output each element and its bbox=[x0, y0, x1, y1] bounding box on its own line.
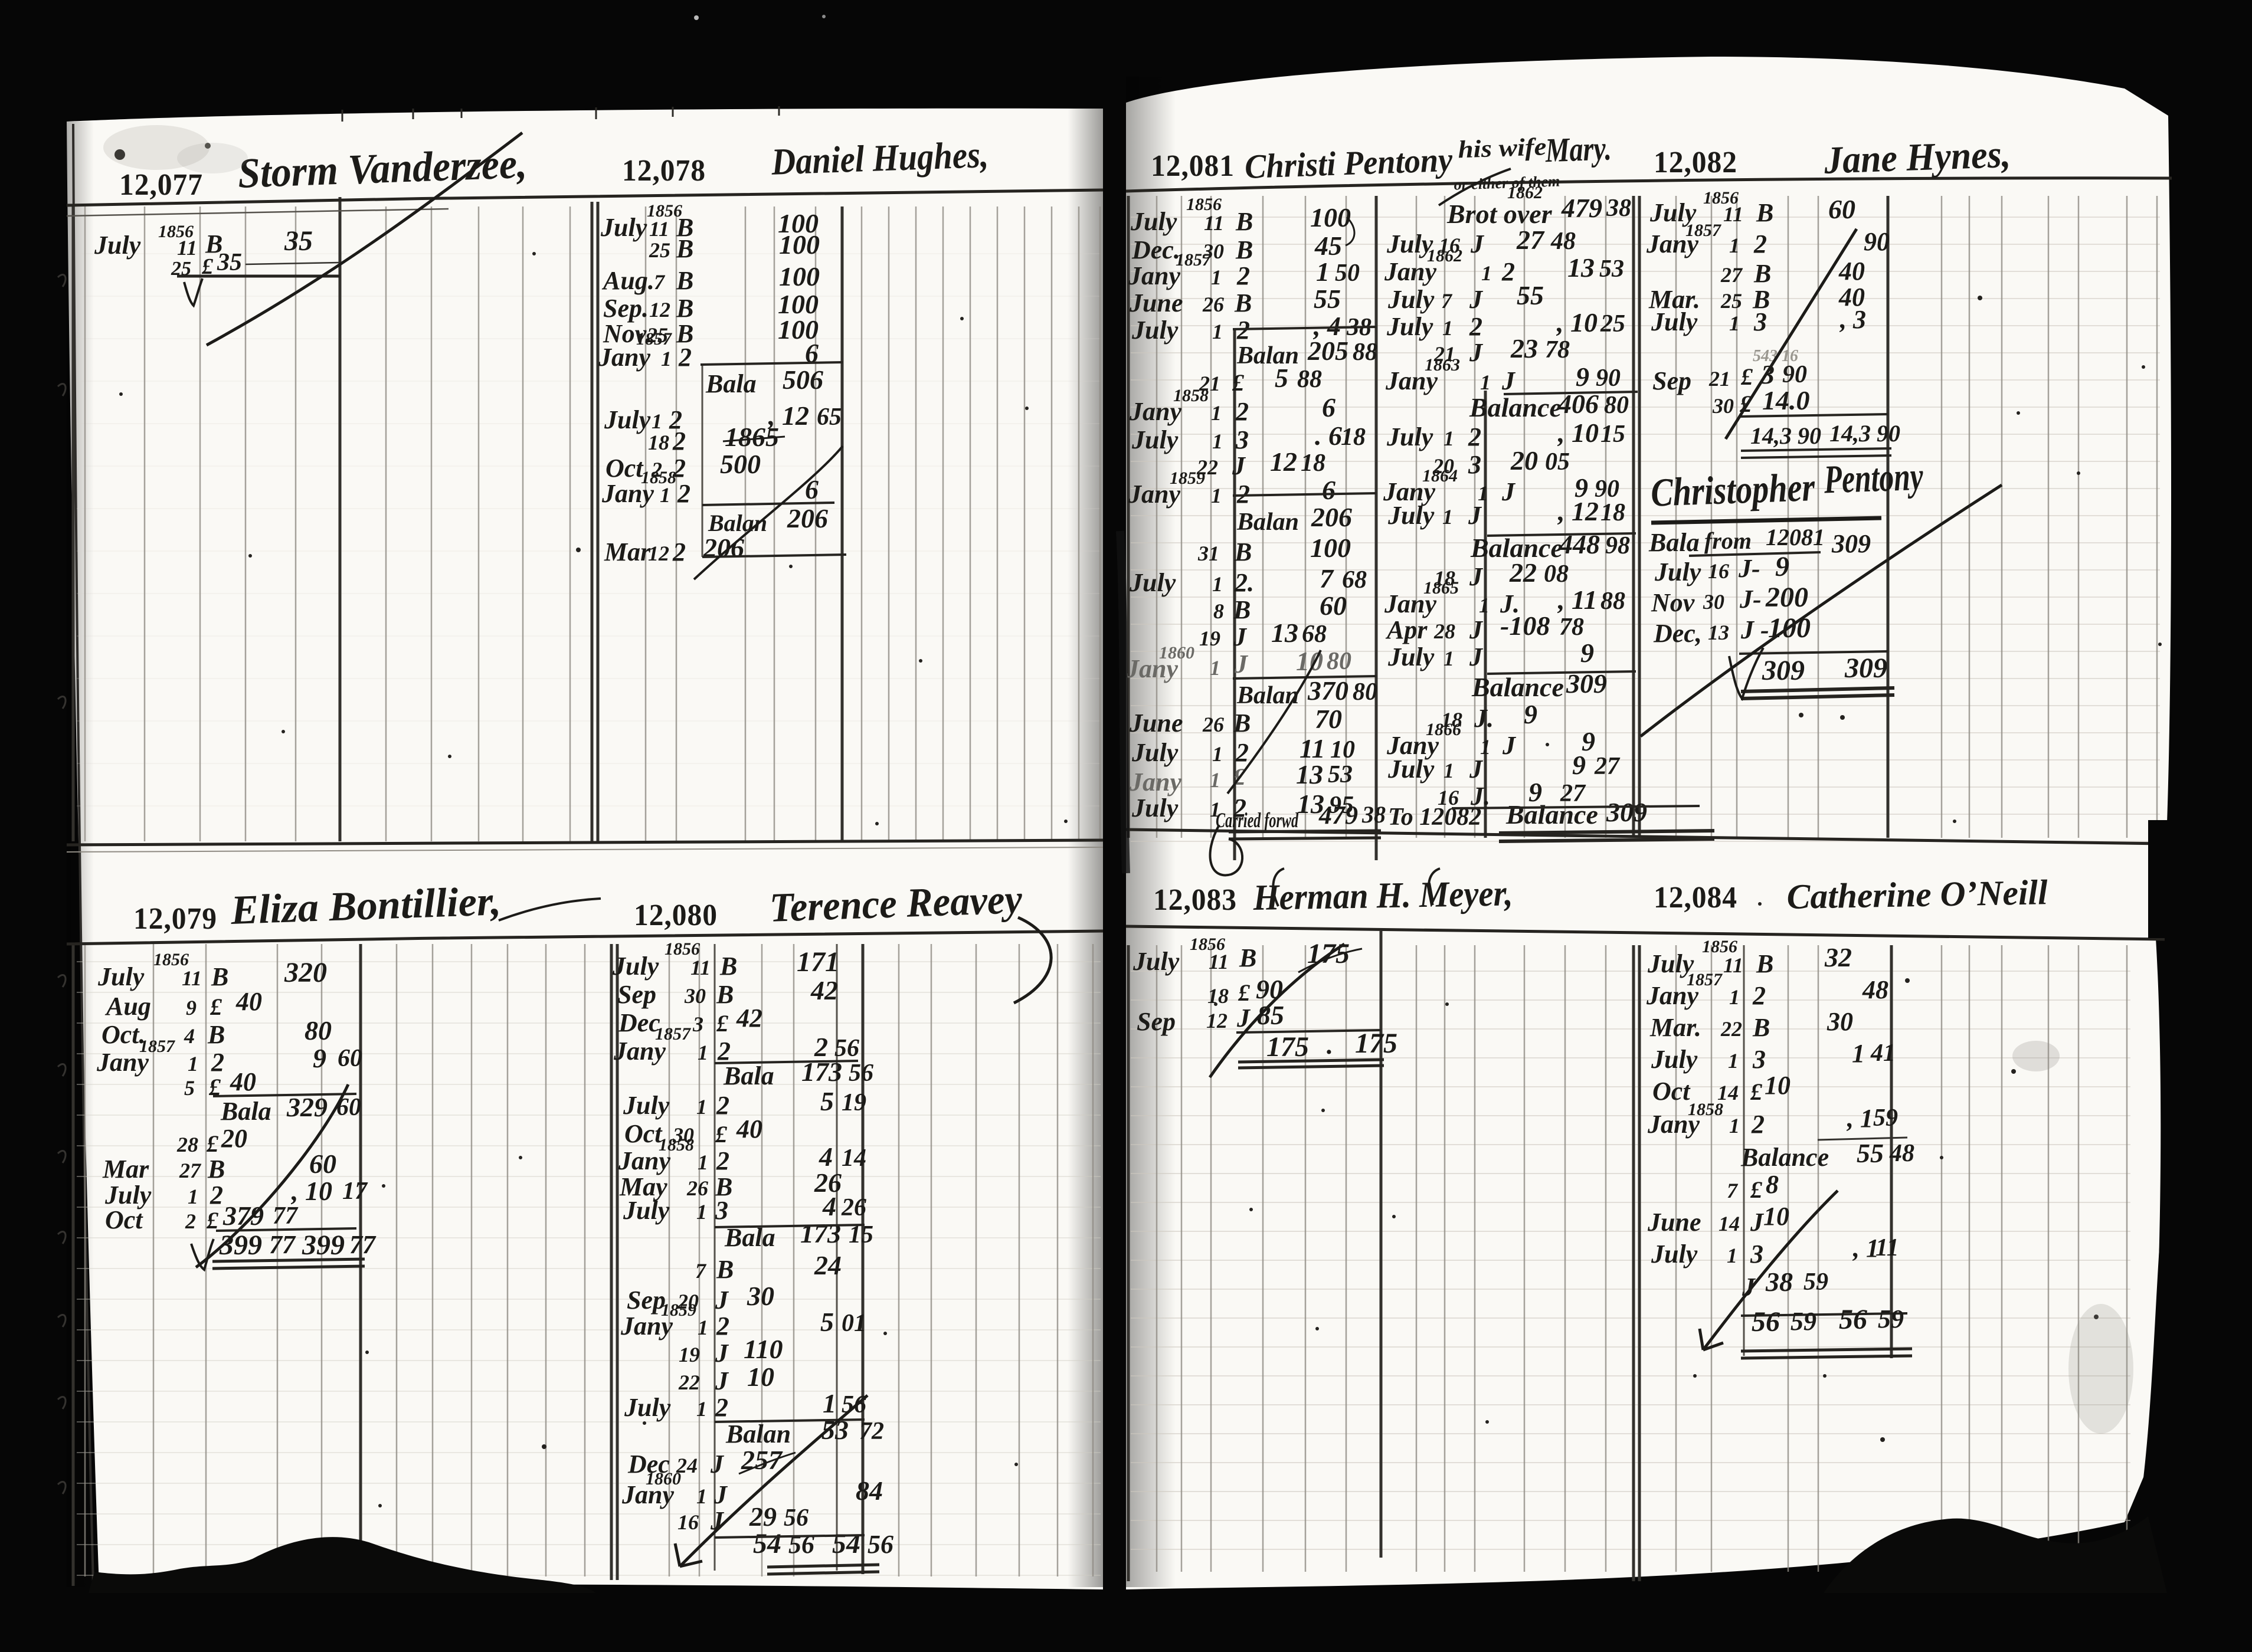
svg-text:Herman H. Meyer,: Herman H. Meyer, bbox=[1252, 873, 1513, 918]
svg-text:14.0: 14.0 bbox=[1762, 385, 1810, 415]
svg-text:1: 1 bbox=[652, 409, 662, 433]
svg-text:1: 1 bbox=[696, 1484, 707, 1508]
svg-text:18: 18 bbox=[648, 431, 669, 454]
svg-text:14: 14 bbox=[1719, 1212, 1740, 1235]
svg-text:B: B bbox=[1234, 537, 1252, 566]
svg-text:July: July bbox=[600, 213, 647, 242]
svg-text:1857: 1857 bbox=[139, 1037, 175, 1056]
svg-text:12: 12 bbox=[649, 298, 670, 322]
svg-text:July: July bbox=[1651, 1045, 1698, 1074]
svg-text:10: 10 bbox=[1330, 736, 1355, 763]
svg-text:July: July bbox=[624, 1393, 671, 1422]
svg-text:25: 25 bbox=[1720, 289, 1742, 313]
svg-text:56: 56 bbox=[788, 1530, 814, 1559]
svg-text:£: £ bbox=[716, 1010, 729, 1037]
svg-text:1: 1 bbox=[1729, 312, 1740, 335]
svg-text:12,080: 12,080 bbox=[634, 899, 718, 932]
svg-text:J: J bbox=[715, 1366, 729, 1395]
svg-text:12,082: 12,082 bbox=[1654, 146, 1737, 179]
svg-text:J: J bbox=[715, 1286, 729, 1315]
svg-text:1: 1 bbox=[1479, 594, 1490, 617]
svg-text:Sep: Sep bbox=[1652, 366, 1691, 395]
svg-text:1: 1 bbox=[1316, 257, 1330, 287]
svg-text:B: B bbox=[1756, 198, 1773, 227]
svg-text:1: 1 bbox=[696, 1200, 707, 1224]
svg-text:-108: -108 bbox=[1500, 611, 1550, 641]
svg-text:2: 2 bbox=[1469, 312, 1482, 341]
svg-text:Mar: Mar bbox=[604, 537, 651, 566]
svg-text:J: J bbox=[710, 1450, 725, 1479]
svg-text:20: 20 bbox=[221, 1124, 247, 1153]
svg-text:Dec: Dec bbox=[618, 1008, 660, 1037]
svg-text:3: 3 bbox=[1468, 450, 1481, 479]
svg-text:Jany: Jany bbox=[1129, 768, 1181, 796]
svg-text:July: July bbox=[1131, 794, 1179, 822]
svg-text:July: July bbox=[1130, 207, 1177, 236]
svg-text:July: July bbox=[1387, 501, 1435, 530]
svg-text:40: 40 bbox=[1838, 257, 1865, 286]
svg-text:Bala: Bala bbox=[1648, 528, 1700, 557]
svg-text:11: 11 bbox=[649, 217, 669, 241]
svg-text:48: 48 bbox=[1889, 1140, 1914, 1167]
svg-text:1: 1 bbox=[1442, 316, 1453, 340]
svg-text:Terence Reavey: Terence Reavey bbox=[769, 877, 1023, 931]
svg-text:205: 205 bbox=[1307, 336, 1348, 366]
svg-text:Mar.: Mar. bbox=[1649, 1013, 1701, 1042]
svg-text:Balance: Balance bbox=[1505, 799, 1598, 830]
svg-text:1857: 1857 bbox=[655, 1024, 691, 1044]
svg-text:55: 55 bbox=[1857, 1138, 1884, 1168]
svg-text:479: 479 bbox=[1318, 801, 1358, 830]
svg-text:July: July bbox=[1131, 316, 1179, 345]
svg-text:100: 100 bbox=[1310, 202, 1351, 232]
svg-text:8: 8 bbox=[1766, 1170, 1779, 1199]
svg-text:77: 77 bbox=[273, 1202, 299, 1230]
svg-text:1859: 1859 bbox=[661, 1300, 696, 1320]
svg-text:Balance: Balance bbox=[1469, 392, 1562, 422]
svg-text:2: 2 bbox=[211, 1048, 224, 1077]
svg-text:56: 56 bbox=[784, 1504, 809, 1532]
svg-text:19: 19 bbox=[1199, 627, 1220, 650]
svg-text:Catherine O’Neill: Catherine O’Neill bbox=[1786, 873, 2048, 916]
svg-text:Mary.: Mary. bbox=[1544, 129, 1612, 169]
svg-text:July: July bbox=[1387, 285, 1435, 314]
svg-text:171: 171 bbox=[797, 946, 839, 978]
svg-text:40: 40 bbox=[230, 1067, 256, 1096]
svg-text:B: B bbox=[676, 234, 693, 263]
svg-text:1862: 1862 bbox=[1427, 246, 1462, 265]
svg-text:July: July bbox=[1386, 422, 1433, 451]
svg-text:12: 12 bbox=[1206, 1009, 1228, 1032]
svg-text:Jany: Jany bbox=[1128, 261, 1180, 290]
svg-text:88: 88 bbox=[1600, 588, 1625, 615]
svg-text:July: July bbox=[612, 952, 659, 981]
svg-text:J: J bbox=[1234, 650, 1249, 678]
svg-text:Dec.: Dec. bbox=[1131, 235, 1180, 264]
svg-text:J-: J- bbox=[1738, 554, 1760, 583]
svg-text:Bala: Bala bbox=[220, 1097, 271, 1126]
svg-text:£: £ bbox=[1740, 363, 1753, 390]
svg-text:11: 11 bbox=[1209, 950, 1229, 973]
svg-text:90: 90 bbox=[1782, 361, 1807, 388]
svg-text:13: 13 bbox=[1567, 253, 1595, 283]
svg-text:B: B bbox=[207, 1155, 225, 1184]
svg-text:21: 21 bbox=[1708, 367, 1730, 391]
svg-text:60: 60 bbox=[1320, 591, 1347, 621]
svg-text:Balan: Balan bbox=[725, 1420, 791, 1448]
svg-text:42: 42 bbox=[736, 1004, 762, 1032]
svg-text:68: 68 bbox=[1342, 566, 1367, 594]
svg-text:12: 12 bbox=[1270, 447, 1297, 477]
svg-text:June: June bbox=[1129, 289, 1183, 317]
svg-text:200: 200 bbox=[1765, 582, 1808, 613]
svg-text:9: 9 bbox=[1524, 699, 1537, 729]
svg-text:40: 40 bbox=[235, 987, 262, 1016]
svg-text:2: 2 bbox=[1236, 261, 1250, 290]
svg-text:84: 84 bbox=[856, 1476, 883, 1506]
svg-text:J: J bbox=[1470, 230, 1485, 258]
svg-text:35: 35 bbox=[217, 249, 242, 276]
svg-text:11: 11 bbox=[1723, 953, 1743, 977]
svg-text:1: 1 bbox=[1210, 656, 1220, 680]
svg-text:10: 10 bbox=[1763, 1202, 1789, 1231]
svg-text:2: 2 bbox=[1751, 1110, 1765, 1139]
svg-text:100: 100 bbox=[779, 230, 820, 260]
svg-text:22: 22 bbox=[1509, 558, 1537, 588]
svg-text:4: 4 bbox=[184, 1024, 195, 1048]
svg-text:July: July bbox=[1132, 947, 1180, 976]
svg-text:Christi Pentony: Christi Pentony bbox=[1244, 140, 1453, 186]
svg-text:12,077: 12,077 bbox=[119, 168, 203, 202]
svg-text:08: 08 bbox=[1544, 560, 1569, 588]
svg-text:B: B bbox=[1234, 289, 1252, 317]
svg-text:1857: 1857 bbox=[636, 329, 672, 349]
svg-text:56: 56 bbox=[1839, 1304, 1867, 1335]
svg-text:J: J bbox=[1469, 285, 1484, 314]
svg-text:1: 1 bbox=[1727, 1244, 1737, 1267]
svg-text:56: 56 bbox=[868, 1530, 893, 1559]
svg-text:B: B bbox=[207, 1020, 225, 1049]
svg-text:14,3 90: 14,3 90 bbox=[1750, 422, 1821, 449]
svg-text:18: 18 bbox=[1341, 424, 1366, 451]
svg-text:Sep: Sep bbox=[617, 980, 656, 1009]
svg-text:. 6: . 6 bbox=[1315, 421, 1342, 451]
svg-text:Christopher: Christopher bbox=[1650, 464, 1816, 515]
svg-text:53: 53 bbox=[1328, 761, 1353, 788]
svg-text:25: 25 bbox=[1600, 310, 1625, 337]
svg-text:80: 80 bbox=[1353, 678, 1377, 706]
svg-text:July: July bbox=[623, 1196, 670, 1225]
svg-text:B: B bbox=[676, 294, 693, 323]
svg-text:80: 80 bbox=[1327, 648, 1351, 675]
svg-text:July: July bbox=[94, 231, 141, 260]
svg-text:J -: J - bbox=[1740, 615, 1769, 644]
svg-text:July: July bbox=[604, 405, 651, 434]
svg-text:6: 6 bbox=[1322, 392, 1336, 422]
svg-text:12: 12 bbox=[648, 542, 669, 565]
svg-text:30: 30 bbox=[1712, 394, 1734, 418]
svg-text:50: 50 bbox=[1335, 260, 1360, 287]
svg-text:Sep.: Sep. bbox=[603, 294, 649, 323]
svg-text:1: 1 bbox=[1729, 985, 1740, 1009]
svg-text:77: 77 bbox=[269, 1230, 296, 1259]
svg-text:J: J bbox=[1469, 755, 1484, 784]
svg-text:54: 54 bbox=[753, 1528, 781, 1559]
svg-text:54: 54 bbox=[832, 1528, 860, 1559]
svg-text:2: 2 bbox=[678, 343, 692, 372]
svg-text:35: 35 bbox=[284, 225, 313, 257]
svg-text:1: 1 bbox=[698, 1041, 708, 1064]
svg-text:1: 1 bbox=[1480, 371, 1491, 394]
svg-text:15: 15 bbox=[1600, 421, 1625, 448]
svg-text:1858: 1858 bbox=[1173, 386, 1209, 405]
svg-text:88: 88 bbox=[1297, 366, 1322, 393]
svg-text:55: 55 bbox=[1517, 280, 1544, 310]
svg-text:9: 9 bbox=[1572, 750, 1586, 780]
svg-text:B: B bbox=[719, 952, 737, 981]
svg-text:1: 1 bbox=[1443, 427, 1454, 450]
svg-text:1: 1 bbox=[696, 1095, 707, 1119]
svg-text:J: J bbox=[1468, 501, 1482, 530]
svg-text:2: 2 bbox=[1235, 738, 1249, 767]
svg-text:Eliza Bontillier,: Eliza Bontillier, bbox=[230, 879, 502, 933]
svg-text:2: 2 bbox=[672, 427, 686, 455]
svg-text:, 10: , 10 bbox=[1556, 307, 1598, 337]
svg-text:309: 309 bbox=[1606, 797, 1647, 827]
svg-text:370: 370 bbox=[1307, 676, 1348, 706]
svg-text:Oct: Oct bbox=[605, 454, 644, 483]
svg-text:1: 1 bbox=[1212, 742, 1223, 766]
svg-text:, 10: , 10 bbox=[1557, 418, 1599, 448]
svg-text:11: 11 bbox=[182, 966, 202, 990]
svg-text:17: 17 bbox=[342, 1178, 368, 1205]
svg-text:9: 9 bbox=[1576, 362, 1589, 392]
svg-text:110: 110 bbox=[744, 1334, 783, 1364]
svg-text:22: 22 bbox=[678, 1371, 700, 1394]
svg-text:48: 48 bbox=[1550, 228, 1576, 255]
svg-text:30: 30 bbox=[747, 1281, 774, 1311]
svg-text:, 1: , 1 bbox=[1847, 1104, 1873, 1133]
svg-text:26: 26 bbox=[1202, 713, 1224, 736]
svg-text:26: 26 bbox=[1202, 293, 1224, 316]
svg-text:1: 1 bbox=[1211, 265, 1222, 289]
svg-text:55: 55 bbox=[1314, 284, 1341, 314]
svg-text:9: 9 bbox=[1580, 638, 1594, 668]
svg-text:B: B bbox=[1235, 235, 1253, 264]
svg-text:11: 11 bbox=[1875, 1234, 1899, 1261]
svg-text:1: 1 bbox=[1212, 572, 1223, 596]
svg-text:B: B bbox=[1233, 709, 1251, 737]
svg-text:20: 20 bbox=[1510, 445, 1538, 476]
svg-text:J: J bbox=[713, 1480, 728, 1509]
svg-text:7: 7 bbox=[1441, 289, 1453, 313]
svg-text:42: 42 bbox=[810, 975, 838, 1005]
svg-text:60: 60 bbox=[338, 1045, 362, 1072]
svg-text:16: 16 bbox=[1708, 559, 1729, 583]
svg-text:Oct: Oct bbox=[105, 1205, 143, 1234]
svg-text:1: 1 bbox=[188, 1052, 198, 1076]
svg-text:12,084: 12,084 bbox=[1654, 881, 1737, 914]
svg-text:J: J bbox=[1232, 451, 1246, 480]
svg-text:19: 19 bbox=[842, 1089, 866, 1116]
svg-text:£: £ bbox=[206, 1130, 219, 1157]
svg-text:2: 2 bbox=[185, 1209, 196, 1233]
svg-text:80: 80 bbox=[305, 1015, 332, 1045]
svg-text:1857: 1857 bbox=[1176, 250, 1212, 270]
svg-text:13: 13 bbox=[1296, 759, 1323, 789]
svg-text:28: 28 bbox=[1433, 619, 1455, 643]
svg-text:Aug: Aug bbox=[104, 992, 151, 1021]
svg-text:40: 40 bbox=[736, 1115, 762, 1143]
svg-text:1858: 1858 bbox=[641, 468, 676, 487]
svg-text:J: J bbox=[1469, 643, 1484, 671]
svg-text:, 10: , 10 bbox=[291, 1176, 332, 1206]
svg-text:1: 1 bbox=[1729, 1114, 1740, 1138]
svg-text:31: 31 bbox=[1197, 542, 1219, 565]
svg-text:2: 2 bbox=[672, 537, 686, 566]
svg-text:05: 05 bbox=[1545, 448, 1570, 476]
svg-text:24: 24 bbox=[814, 1250, 842, 1280]
svg-text:25: 25 bbox=[649, 238, 670, 262]
svg-text:1: 1 bbox=[1481, 261, 1492, 285]
svg-text:2: 2 bbox=[1468, 422, 1481, 451]
svg-text:1860: 1860 bbox=[646, 1469, 681, 1489]
svg-text:27: 27 bbox=[1516, 225, 1545, 255]
svg-text:27: 27 bbox=[1720, 263, 1743, 287]
svg-text:59: 59 bbox=[1873, 1104, 1898, 1132]
svg-text:59: 59 bbox=[1803, 1268, 1828, 1296]
svg-text:J: J bbox=[1469, 615, 1484, 644]
svg-text:78: 78 bbox=[1559, 614, 1584, 641]
svg-text:13: 13 bbox=[1271, 618, 1298, 648]
svg-text:38: 38 bbox=[1606, 195, 1631, 222]
svg-text:19: 19 bbox=[679, 1343, 700, 1366]
svg-text:B: B bbox=[1756, 949, 1773, 978]
svg-text:175: 175 bbox=[1355, 1028, 1397, 1059]
svg-text:29: 29 bbox=[749, 1502, 777, 1532]
svg-text:30: 30 bbox=[1827, 1007, 1853, 1036]
svg-text:12,079: 12,079 bbox=[133, 902, 217, 936]
svg-text:1863: 1863 bbox=[1425, 355, 1460, 375]
svg-text:10: 10 bbox=[747, 1362, 774, 1392]
svg-text:3: 3 bbox=[1235, 425, 1249, 454]
svg-text:from: from bbox=[1704, 527, 1752, 554]
svg-text:July: July bbox=[1131, 738, 1179, 767]
svg-text:B: B bbox=[1235, 207, 1253, 236]
svg-text:22: 22 bbox=[1720, 1017, 1742, 1041]
svg-text:B: B bbox=[676, 266, 693, 295]
svg-text:206: 206 bbox=[1311, 502, 1352, 532]
svg-text:Balance: Balance bbox=[1471, 672, 1564, 702]
svg-text:2.: 2. bbox=[1234, 568, 1254, 597]
svg-text:2: 2 bbox=[210, 1181, 223, 1209]
svg-text:7: 7 bbox=[1320, 563, 1334, 594]
svg-text:56: 56 bbox=[1752, 1306, 1780, 1338]
svg-text:July: July bbox=[1387, 755, 1435, 784]
svg-text:Sep: Sep bbox=[1137, 1007, 1176, 1036]
svg-text:309: 309 bbox=[1844, 653, 1887, 684]
svg-text:8: 8 bbox=[1213, 599, 1224, 623]
svg-text:July: July bbox=[1386, 230, 1433, 258]
svg-text:2: 2 bbox=[716, 1091, 729, 1120]
svg-text:J: J bbox=[1501, 366, 1516, 395]
svg-text:309: 309 bbox=[1831, 529, 1871, 558]
svg-text:3: 3 bbox=[715, 1196, 728, 1225]
svg-text:479: 479 bbox=[1561, 193, 1602, 223]
svg-text:J.: J. bbox=[1474, 704, 1494, 733]
svg-text:500: 500 bbox=[720, 449, 761, 479]
svg-text:1858: 1858 bbox=[659, 1135, 694, 1155]
svg-text:1865: 1865 bbox=[1423, 578, 1459, 598]
svg-text:26: 26 bbox=[686, 1176, 708, 1200]
svg-text:Bala: Bala bbox=[723, 1061, 774, 1090]
svg-text:J-: J- bbox=[1739, 585, 1762, 614]
svg-text:J: J bbox=[1469, 562, 1484, 591]
svg-text:60: 60 bbox=[309, 1149, 336, 1179]
svg-text:56: 56 bbox=[849, 1060, 873, 1087]
svg-text:1: 1 bbox=[1443, 647, 1454, 670]
svg-text:329: 329 bbox=[286, 1092, 328, 1122]
svg-text:Oct: Oct bbox=[1652, 1077, 1691, 1106]
svg-text:, 11: , 11 bbox=[1557, 585, 1597, 615]
svg-text:Aug.: Aug. bbox=[601, 266, 654, 295]
svg-text:1: 1 bbox=[698, 1316, 708, 1339]
svg-text:38: 38 bbox=[1765, 1267, 1793, 1297]
svg-text:80: 80 bbox=[1604, 392, 1629, 419]
svg-text:July: July bbox=[97, 962, 145, 991]
svg-text:July: July bbox=[1131, 425, 1179, 454]
svg-text:18: 18 bbox=[1301, 450, 1325, 477]
svg-text:4: 4 bbox=[822, 1191, 836, 1221]
svg-text:B: B bbox=[1233, 595, 1251, 624]
svg-text:11: 11 bbox=[177, 236, 197, 260]
svg-text:1866: 1866 bbox=[1426, 720, 1461, 739]
svg-text:Nov: Nov bbox=[1651, 588, 1695, 617]
svg-text:68: 68 bbox=[1302, 621, 1327, 648]
svg-text:77: 77 bbox=[349, 1230, 377, 1259]
svg-text:B: B bbox=[211, 962, 228, 991]
svg-text:320: 320 bbox=[284, 957, 327, 988]
svg-text:1857: 1857 bbox=[1685, 221, 1721, 240]
svg-text:£: £ bbox=[715, 1121, 728, 1148]
svg-text:12081: 12081 bbox=[1766, 524, 1825, 550]
svg-text:B: B bbox=[716, 1255, 734, 1284]
svg-text:2: 2 bbox=[1235, 397, 1249, 426]
svg-text:3: 3 bbox=[1753, 307, 1767, 336]
svg-text:, 12: , 12 bbox=[1557, 496, 1599, 526]
svg-text:38: 38 bbox=[1361, 801, 1386, 828]
svg-text:1860: 1860 bbox=[1159, 643, 1194, 663]
svg-text:100: 100 bbox=[779, 261, 820, 291]
svg-text:Storm Vanderzee,: Storm Vanderzee, bbox=[237, 140, 528, 197]
svg-text:16: 16 bbox=[677, 1510, 699, 1534]
svg-text:J: J bbox=[1233, 622, 1248, 651]
svg-text:506: 506 bbox=[783, 365, 823, 395]
svg-text:28: 28 bbox=[176, 1133, 198, 1156]
svg-text:11: 11 bbox=[1723, 202, 1743, 226]
svg-text:July: July bbox=[1129, 568, 1176, 597]
svg-text:2: 2 bbox=[1501, 257, 1515, 286]
svg-text:26: 26 bbox=[841, 1194, 866, 1221]
svg-text:£: £ bbox=[1238, 979, 1251, 1006]
svg-text:Balance: Balance bbox=[1740, 1143, 1829, 1172]
svg-text:July: July bbox=[1654, 558, 1701, 586]
svg-text:32: 32 bbox=[1824, 942, 1852, 972]
svg-text:1: 1 bbox=[698, 1150, 708, 1174]
svg-text:5: 5 bbox=[820, 1307, 834, 1337]
svg-text:206: 206 bbox=[787, 503, 828, 533]
svg-text:11: 11 bbox=[690, 956, 711, 979]
